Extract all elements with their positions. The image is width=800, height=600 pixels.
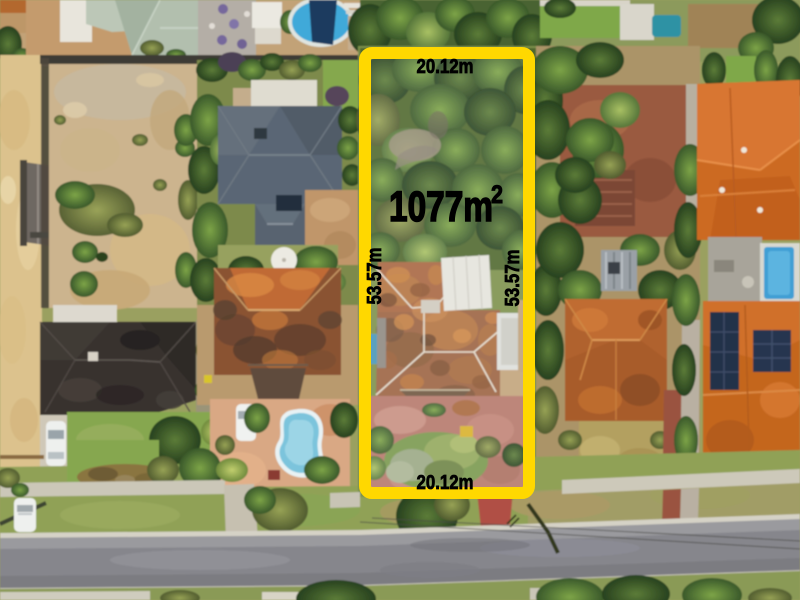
svg-text:53.57m: 53.57m — [364, 248, 386, 305]
svg-text:53.57m: 53.57m — [502, 250, 524, 307]
svg-text:20.12m: 20.12m — [417, 56, 474, 78]
svg-text:2: 2 — [491, 181, 503, 209]
svg-text:20.12m: 20.12m — [417, 472, 474, 494]
svg-text:1077m: 1077m — [389, 183, 493, 231]
